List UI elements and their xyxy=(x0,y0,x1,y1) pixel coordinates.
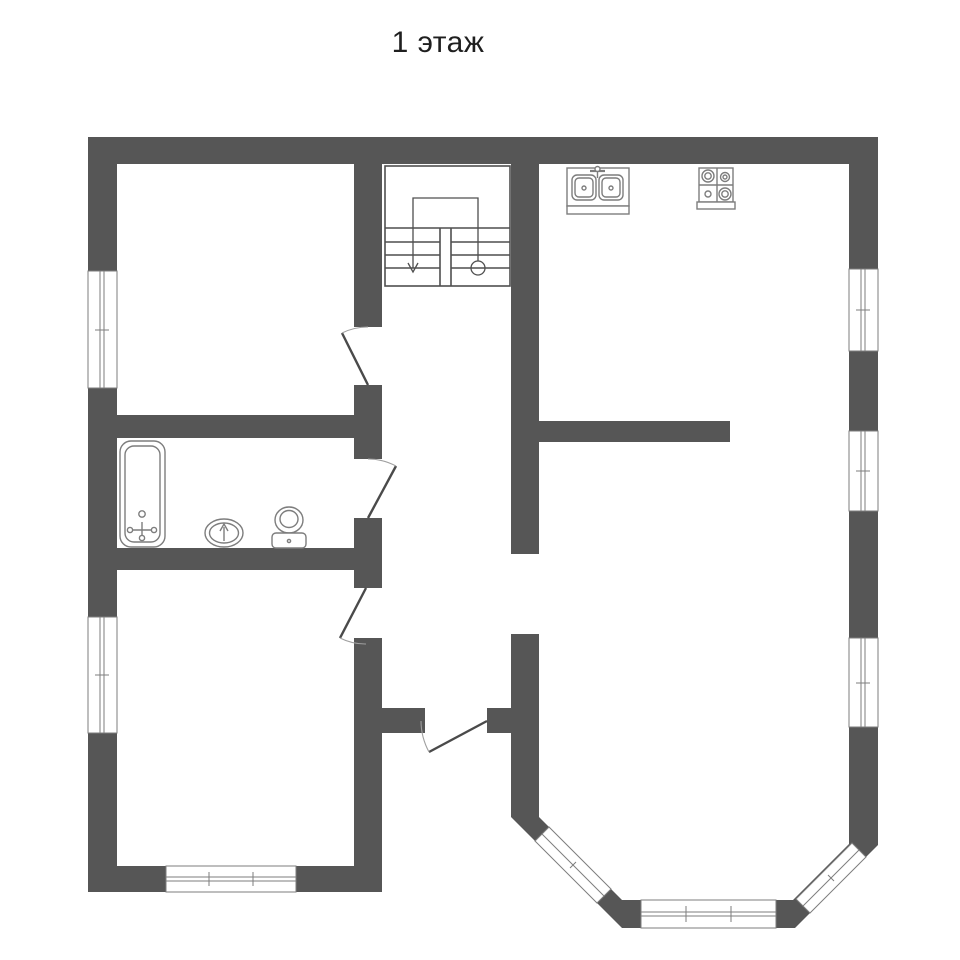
window-bottom xyxy=(166,866,296,892)
window-bay-bottom xyxy=(641,900,776,928)
floor-plan-page: 1 этаж xyxy=(0,0,960,960)
door-entrance xyxy=(421,721,487,752)
floor-plan-svg xyxy=(0,0,960,960)
window-bay-left xyxy=(535,827,611,903)
window-right-1 xyxy=(849,269,878,351)
bathtub xyxy=(120,441,165,547)
window-bay-right xyxy=(796,843,866,913)
door-bottom-room xyxy=(340,588,366,644)
window-left-2 xyxy=(88,617,117,733)
floor-plan xyxy=(0,0,960,960)
kitchen-sink xyxy=(567,167,629,215)
toilet xyxy=(272,507,306,548)
window-right-2 xyxy=(849,431,878,511)
window-left-1 xyxy=(88,271,117,388)
window-right-3 xyxy=(849,638,878,727)
door-top-room xyxy=(342,327,368,385)
stove xyxy=(697,168,735,209)
washbasin xyxy=(205,519,243,547)
staircase xyxy=(385,166,510,286)
door-bathroom xyxy=(368,459,396,518)
